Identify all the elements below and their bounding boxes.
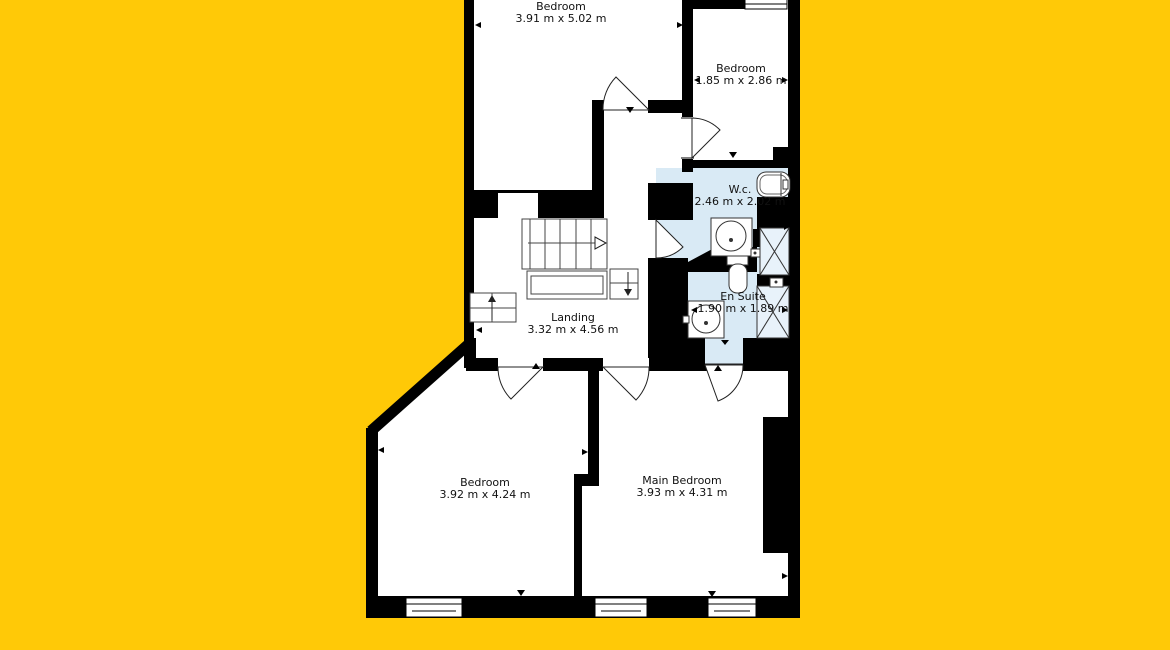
label-bedroom-top: Bedroom 3.91 m x 5.02 m bbox=[516, 1, 607, 25]
room-dims: 1.90 m x 1.89 m bbox=[698, 303, 789, 315]
floorplan-page: Bedroom 3.91 m x 5.02 m Bedroom 1.85 m x… bbox=[0, 0, 1170, 650]
wall-ensuite-se bbox=[743, 338, 757, 360]
wall-bottom-divider-upper bbox=[588, 362, 599, 482]
wall-shower-south bbox=[757, 338, 790, 360]
room-dims: 3.32 m x 4.56 m bbox=[528, 324, 619, 336]
label-ensuite: En Suite 1.90 m x 1.89 m bbox=[698, 291, 789, 315]
label-main-bedroom: Main Bedroom 3.93 m x 4.31 m bbox=[637, 475, 728, 499]
wall-bedroom-divider-top bbox=[682, 0, 693, 118]
window-top-icon bbox=[745, 0, 787, 9]
wall-ensuite-sw bbox=[688, 336, 705, 360]
room-dims: 3.93 m x 4.31 m bbox=[637, 487, 728, 499]
wall-left-bottom bbox=[366, 428, 378, 600]
stair-banister-inner bbox=[531, 276, 603, 294]
stair-winders bbox=[610, 269, 638, 299]
window-bottom-middle-icon bbox=[595, 598, 647, 617]
wall-right bbox=[788, 0, 800, 618]
room-dims: 3.91 m x 5.02 m bbox=[516, 13, 607, 25]
toilet-icon bbox=[727, 256, 748, 293]
label-wc: W.c. 2.46 m x 2.02 m bbox=[695, 184, 786, 208]
wall-ensuite-west-column bbox=[648, 258, 688, 360]
wall-smallbedroom-north bbox=[693, 0, 747, 9]
stair-treads bbox=[522, 219, 607, 269]
wall-wc-north bbox=[690, 160, 773, 168]
label-bedroom-small: Bedroom 1.85 m x 2.86 m bbox=[696, 63, 787, 87]
wall-corner-block bbox=[773, 147, 790, 168]
room-dims: 3.92 m x 4.24 m bbox=[440, 489, 531, 501]
wall-niche bbox=[498, 193, 538, 218]
window-bottom-left-icon bbox=[406, 598, 462, 617]
window-bottom-right-icon bbox=[708, 598, 756, 617]
room-dims: 1.85 m x 2.86 m bbox=[696, 75, 787, 87]
label-landing: Landing 3.32 m x 4.56 m bbox=[528, 312, 619, 336]
wall-chimney-breast bbox=[763, 417, 788, 553]
door-gap-ensuite bbox=[705, 355, 743, 364]
wc-sink-icon bbox=[711, 218, 752, 256]
wall-corridor-west bbox=[592, 100, 604, 192]
wall-bottom-divider-lower bbox=[574, 482, 582, 600]
label-bedroom-bl: Bedroom 3.92 m x 4.24 m bbox=[440, 477, 531, 501]
room-dims: 2.46 m x 2.02 m bbox=[695, 196, 786, 208]
wall-wc-entry-block bbox=[648, 183, 693, 220]
